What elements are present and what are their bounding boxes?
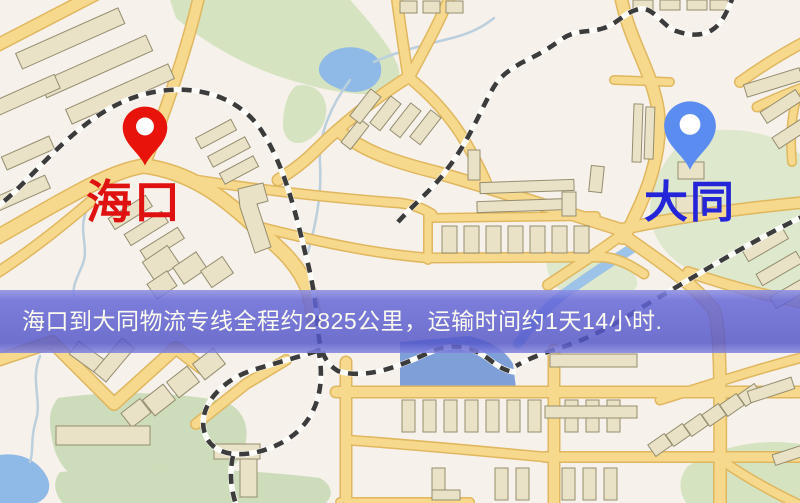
- destination-city-label: 大同: [644, 181, 736, 225]
- route-info-banner: 海口到大同物流专线全程约2825公里，运输时间约1天14小时.: [0, 290, 800, 353]
- destination-marker: [661, 99, 719, 172]
- freight-route-map: 海口到大同物流专线全程约2825公里，运输时间约1天14小时. 海口 大同: [0, 0, 800, 503]
- origin-marker: [120, 102, 170, 170]
- map-canvas: [0, 0, 800, 503]
- location-pin-icon: [661, 99, 719, 172]
- location-pin-icon: [120, 102, 170, 170]
- origin-city-label: 海口: [86, 179, 182, 225]
- route-info-text: 海口到大同物流专线全程约2825公里，运输时间约1天14小时.: [0, 310, 662, 333]
